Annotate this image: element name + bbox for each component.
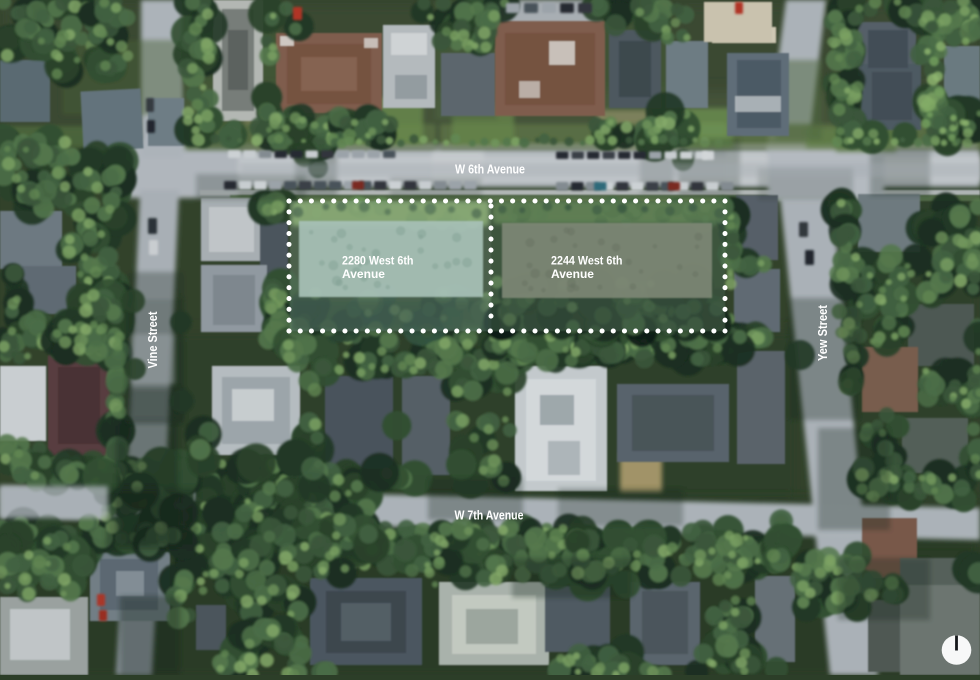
svg-text:W 6th Avenue: W 6th Avenue <box>455 163 525 177</box>
svg-text:Yew Street: Yew Street <box>816 304 830 361</box>
svg-text:W 7th Avenue: W 7th Avenue <box>455 509 524 523</box>
svg-text:Vine Street: Vine Street <box>146 311 160 369</box>
